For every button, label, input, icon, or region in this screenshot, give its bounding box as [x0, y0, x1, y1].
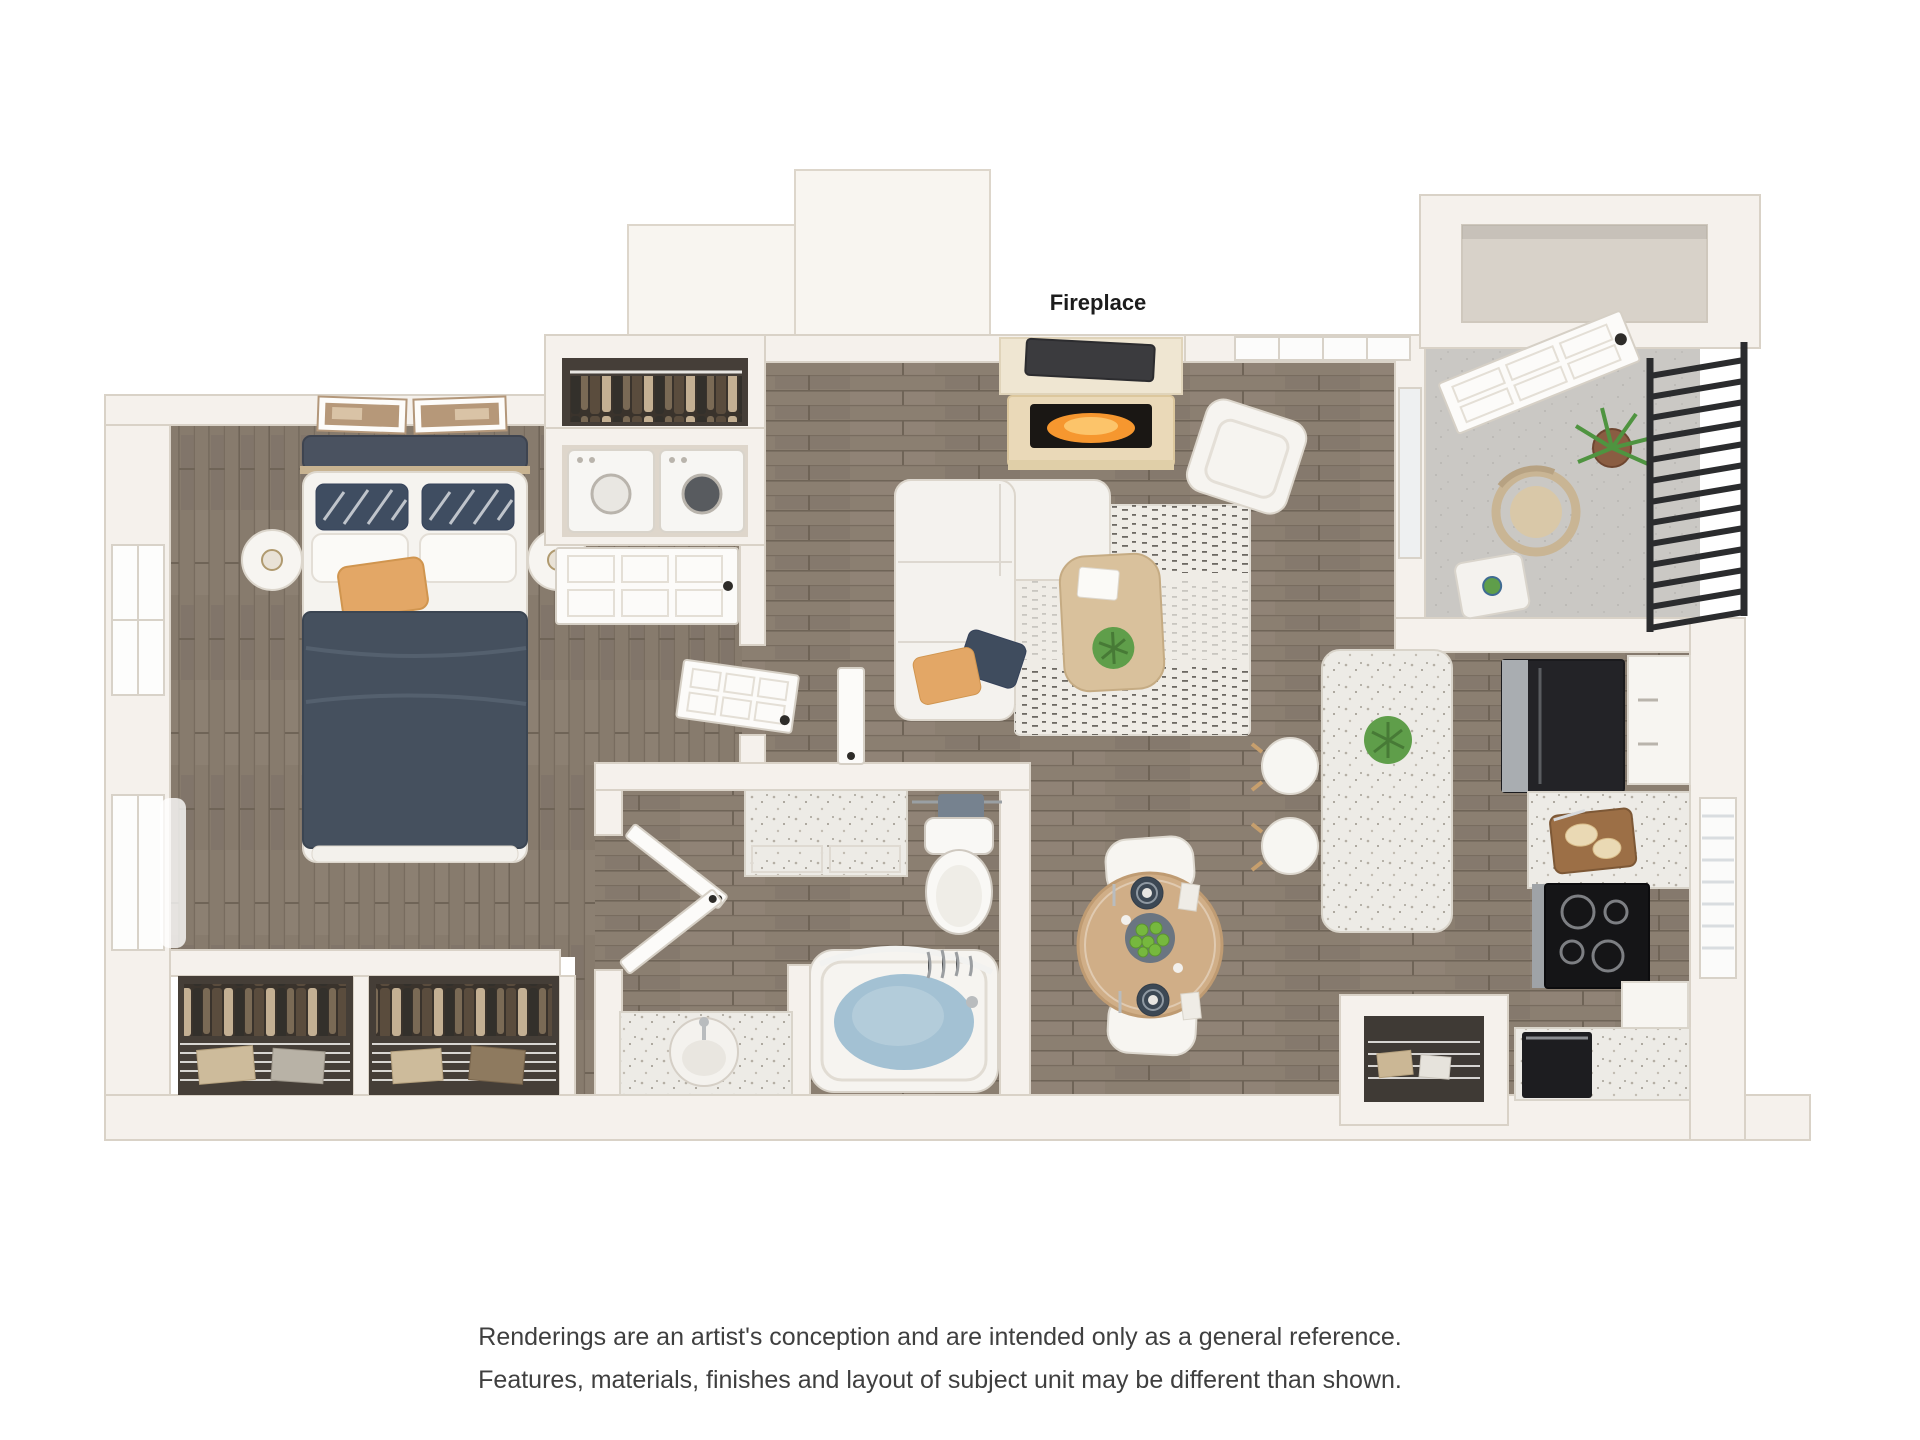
towel	[938, 794, 984, 820]
dishwasher	[1522, 1032, 1592, 1098]
hanging-clothes	[184, 984, 346, 1036]
bed-foot-sheet	[312, 846, 518, 862]
disclaimer: Renderings are an artist's conception an…	[478, 1323, 1402, 1394]
closet-front-wall	[170, 950, 560, 976]
hanging-clothes	[376, 984, 552, 1036]
wall-chase-fireplace	[795, 170, 990, 340]
left-outer-wall	[105, 395, 170, 1140]
nightstand-left	[242, 530, 302, 590]
tv-panel	[1025, 339, 1155, 382]
closet-divider-wall	[353, 976, 369, 1095]
bedroom-window-lower	[112, 795, 186, 950]
closet-bay-2	[369, 976, 559, 1095]
blanket	[303, 612, 527, 848]
hall-closet-and-laundry	[545, 335, 765, 624]
vanity	[620, 1012, 792, 1095]
fruit-bowl	[1125, 913, 1175, 963]
cup	[1121, 915, 1131, 925]
dryer	[660, 450, 744, 532]
cup	[1173, 963, 1183, 973]
curtain	[160, 798, 186, 948]
kitchen-window	[1700, 798, 1736, 978]
lamp-icon	[262, 550, 282, 570]
hearth-lip	[1008, 460, 1174, 470]
hall-closet-door	[556, 548, 738, 624]
storage-box	[1419, 1055, 1451, 1080]
disclaimer-line-1: Renderings are an artist's conception an…	[478, 1323, 1401, 1351]
fireplace	[1000, 338, 1182, 470]
tub-faucet-icon	[966, 996, 978, 1008]
patio-side-table	[1454, 553, 1531, 620]
living-window	[1235, 337, 1410, 360]
storage-basket	[271, 1048, 325, 1084]
washer	[568, 450, 654, 532]
bathroom-left-wall-upper	[595, 790, 622, 835]
pattern-pillow-left	[316, 484, 408, 530]
white-pillow-right	[420, 534, 516, 582]
bathroom-top-wall	[595, 763, 1030, 790]
napkin	[1181, 992, 1202, 1020]
bathroom-left-wall-lower	[595, 970, 622, 1095]
toilet-tank	[925, 818, 993, 854]
bathroom-right-wall	[1000, 790, 1030, 1095]
storage-basket	[391, 1048, 443, 1083]
closet-right-wall	[559, 976, 575, 1095]
door-knob-icon	[723, 581, 733, 591]
balcony-door-window	[1399, 388, 1421, 558]
door-knob-icon	[847, 752, 855, 760]
storage-box	[1377, 1050, 1413, 1077]
bathroom-cabinet-counter	[745, 790, 907, 876]
fireplace-label: Fireplace	[1050, 290, 1147, 315]
book	[1077, 567, 1119, 600]
fire-glow	[1064, 417, 1118, 435]
storage-basket	[197, 1046, 256, 1085]
headboard	[303, 436, 527, 470]
balcony-storage-interior	[1462, 225, 1707, 322]
bottom-outer-wall	[105, 1095, 1810, 1140]
bathtub	[810, 949, 998, 1092]
floor-plan-svg: Fireplace Renderings are an artist's con…	[0, 0, 1920, 1440]
kitchen-island	[1322, 650, 1452, 932]
wall-chase-left	[628, 225, 795, 340]
hall-door-leaf	[838, 668, 864, 764]
balcony-storage-shadow	[1462, 225, 1707, 239]
coffee-table	[1059, 552, 1166, 692]
cabinet-beside-fridge	[1628, 656, 1690, 784]
hanging-clothes	[570, 376, 742, 422]
floor-plan-rendering: Fireplace Renderings are an artist's con…	[0, 0, 1920, 1440]
accent-pillow	[337, 556, 429, 619]
pantry-closet	[1340, 995, 1508, 1125]
refrigerator	[1502, 660, 1624, 792]
bottom-counter-run	[1515, 1028, 1690, 1100]
bedroom-right-wall-stub	[740, 735, 765, 765]
disclaimer-line-2: Features, materials, finishes and layout…	[478, 1366, 1402, 1394]
storage-basket	[469, 1046, 526, 1085]
bed	[300, 436, 530, 862]
stove	[1532, 884, 1649, 988]
napkin	[1178, 883, 1199, 911]
closet-bay-1	[178, 976, 353, 1095]
pattern-pillow-right	[422, 484, 514, 530]
prep-counter	[1528, 792, 1690, 888]
bedroom-window-upper	[112, 545, 164, 695]
